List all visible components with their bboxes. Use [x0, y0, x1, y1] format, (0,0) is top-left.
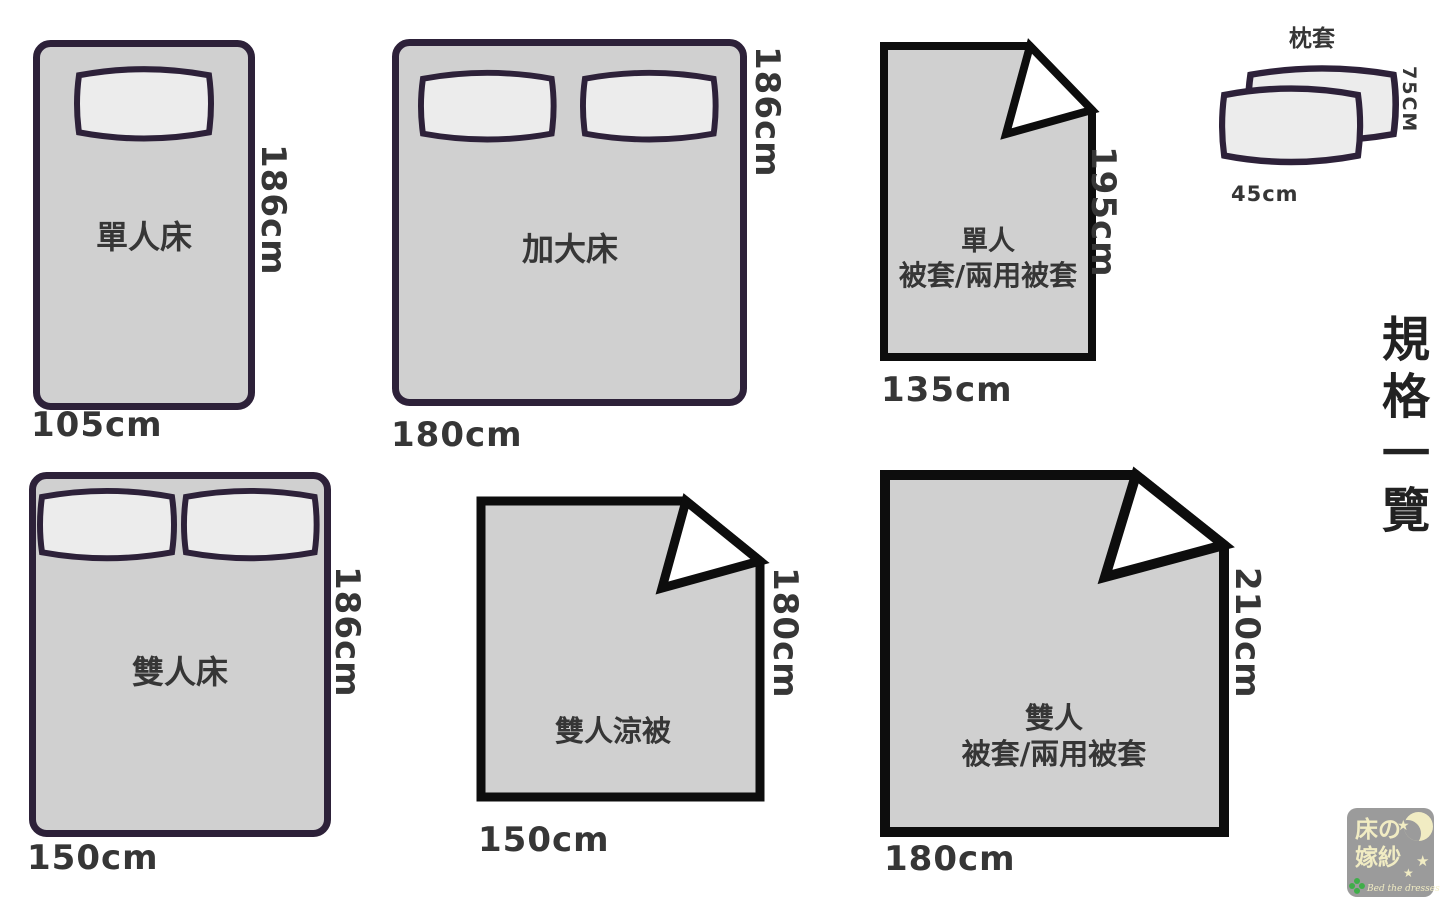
- double-bed-label: 雙人床: [100, 656, 260, 690]
- double-duvet-width-dim: 180cm: [884, 842, 1016, 876]
- single-bed-width-dim: 105cm: [31, 408, 163, 442]
- double-quilt-width-dim: 150cm: [478, 823, 610, 857]
- logo-text-line2: 嫁紗: [1355, 847, 1401, 870]
- logo-tagline: Bed the dresses: [1367, 884, 1440, 894]
- king-bed-label: 加大床: [490, 233, 650, 267]
- king-bed-width-dim: 180cm: [391, 418, 523, 452]
- brand-logo: 床の 嫁紗 ★ ★ ★ Bed the dresses: [1347, 808, 1434, 897]
- double-duvet-label-line1: 雙人: [954, 703, 1154, 733]
- double-duvet-height-dim: 210cm: [1230, 567, 1264, 699]
- pillowcase-height-dim: 75CM: [1399, 66, 1418, 133]
- diagram-canvas: [0, 0, 1440, 900]
- double-bed-width-dim: 150cm: [27, 841, 159, 875]
- king-bed-height-dim: 186cm: [750, 46, 784, 178]
- logo-text-line1: 床の: [1355, 819, 1401, 842]
- pillowcase-front-icon: [1222, 89, 1360, 162]
- single-duvet-width-dim: 135cm: [881, 373, 1013, 407]
- star-icon: ★: [1403, 867, 1414, 879]
- double-duvet-label-line2: 被套/兩用被套: [924, 739, 1184, 769]
- single-bed-pillow-icon: [77, 69, 211, 138]
- pillowcase-label: 枕套: [1272, 27, 1352, 51]
- single-bed-label: 單人床: [64, 221, 224, 255]
- pillowcase-width-dim: 45cm: [1231, 184, 1299, 205]
- single-duvet-height-dim: 195cm: [1086, 146, 1120, 278]
- single-duvet-label-line1: 單人: [888, 228, 1088, 256]
- king-bed-pillow-right-icon: [583, 73, 716, 140]
- double-bed-height-dim: 186cm: [330, 566, 364, 698]
- star-icon: ★: [1416, 854, 1429, 869]
- double-quilt-height-dim: 180cm: [768, 567, 802, 699]
- double-bed-pillow-left-icon: [40, 491, 174, 558]
- clover-icon: [1353, 877, 1361, 885]
- single-bed-height-dim: 186cm: [256, 144, 290, 276]
- star-icon: ★: [1397, 819, 1410, 833]
- single-duvet-label-line2: 被套/兩用被套: [858, 261, 1118, 290]
- page-title: 規格一覽: [1377, 314, 1425, 542]
- king-bed-pillow-left-icon: [421, 73, 554, 140]
- double-bed-pillow-right-icon: [184, 491, 317, 558]
- double-quilt-label: 雙人涼被: [523, 716, 703, 746]
